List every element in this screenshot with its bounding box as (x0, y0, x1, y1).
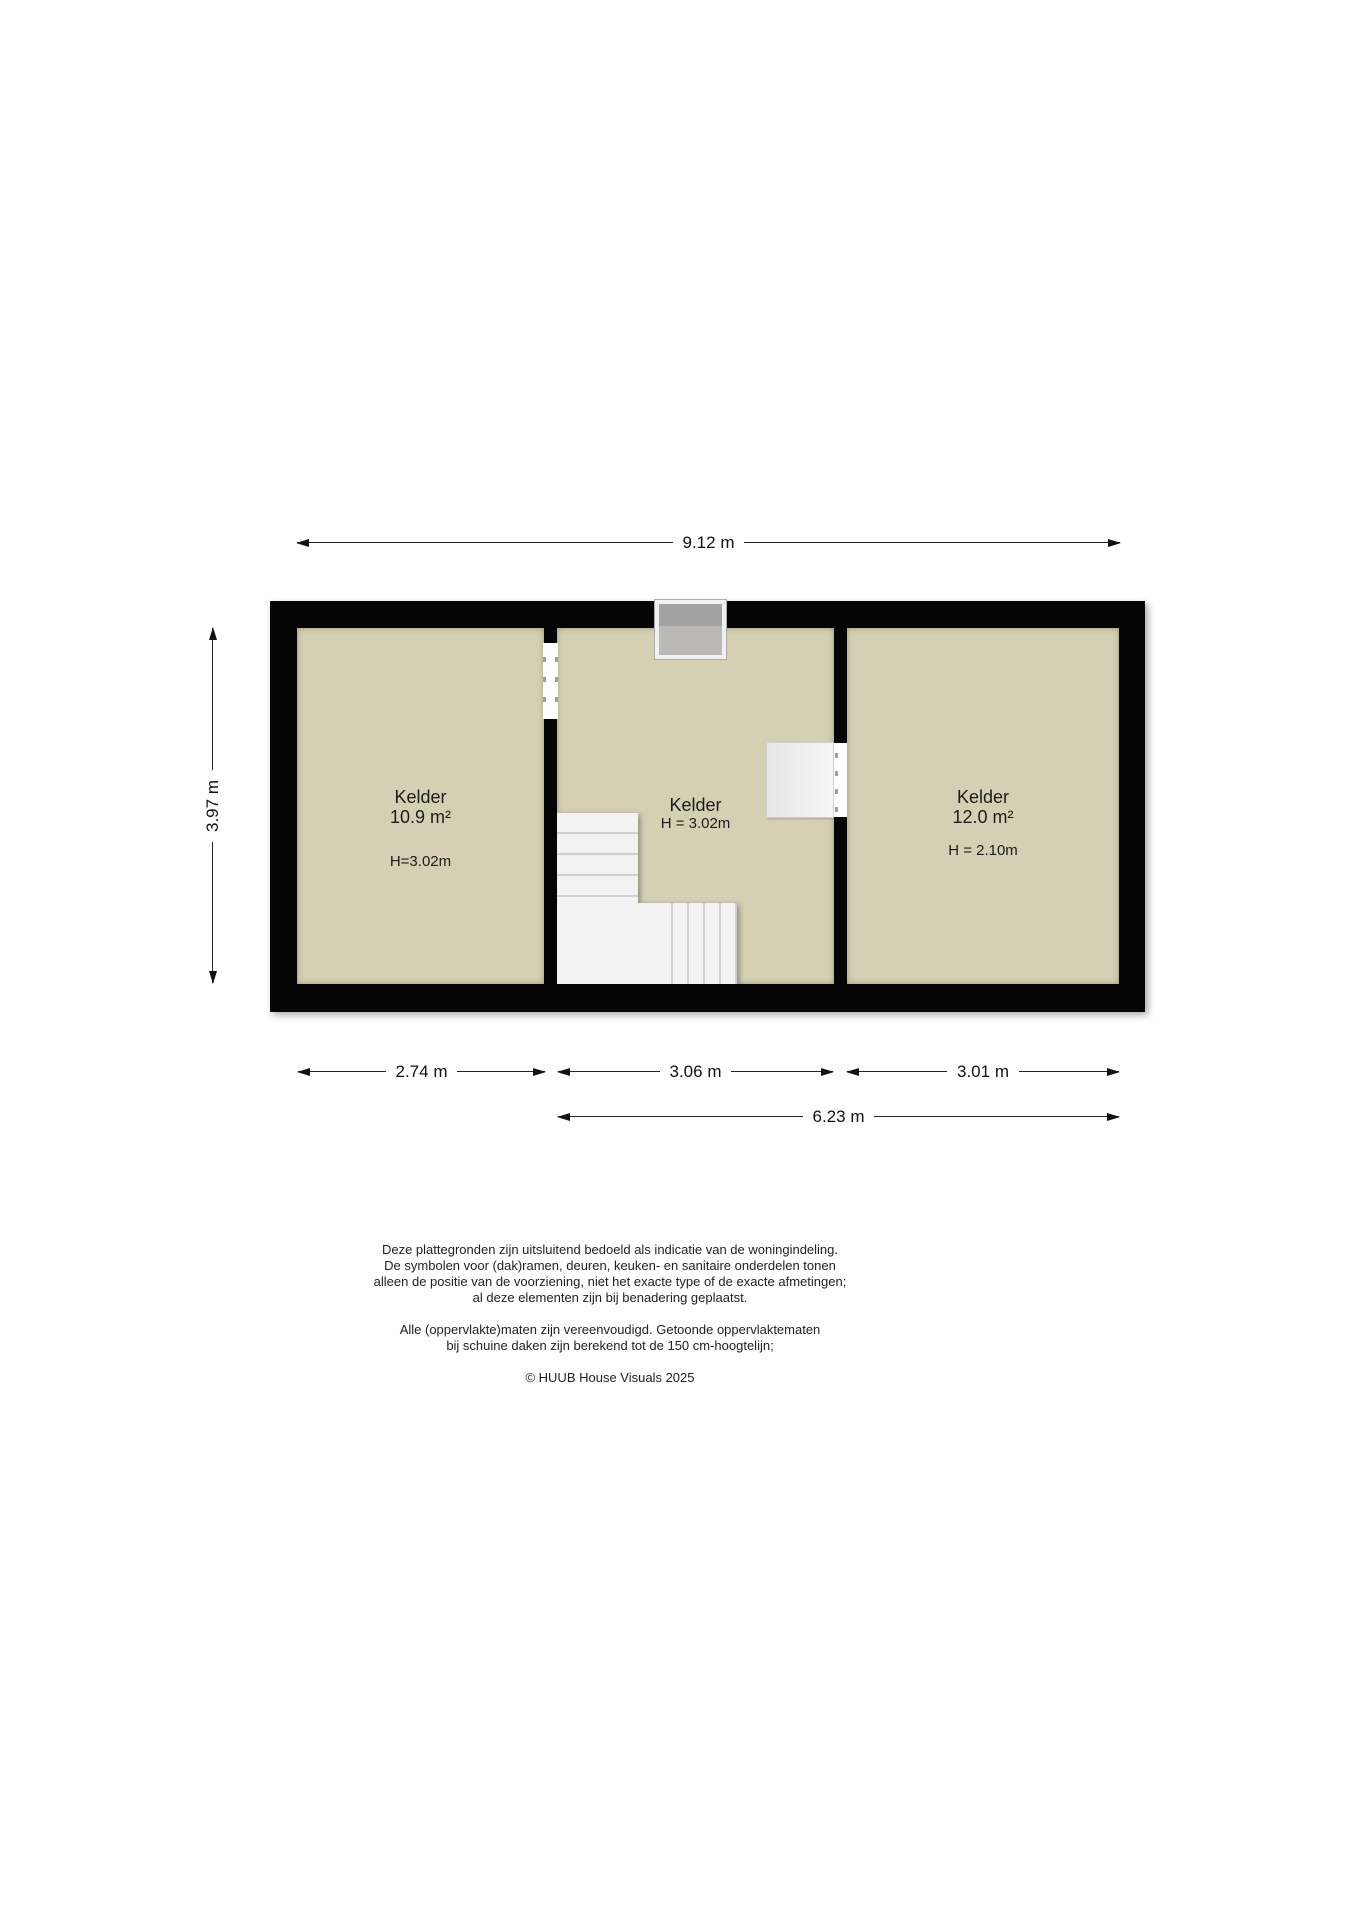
arrow-right-icon (821, 1068, 834, 1076)
room-area: 10.9 m² (297, 807, 544, 827)
arrow-right-icon (1107, 1113, 1120, 1121)
room-name: Kelder (297, 787, 544, 807)
room-kelder-3: Kelder 12.0 m² H = 2.10m (847, 628, 1119, 984)
dimension-total-height-label: 3.97 m (203, 770, 223, 842)
room-kelder-3-label: Kelder 12.0 m² H = 2.10m (847, 787, 1119, 859)
room-kelder-1: Kelder 10.9 m² H=3.02m (297, 628, 544, 984)
door-leaf-icon (766, 742, 834, 818)
door-dashes (835, 753, 838, 813)
room-name: Kelder (847, 787, 1119, 807)
disclaimer-line: alleen de positie van de voorziening, ni… (374, 1274, 847, 1290)
door-opening-icon (834, 743, 847, 817)
disclaimer-line: bij schuine daken zijn berekend tot de 1… (374, 1338, 847, 1354)
disclaimer-line: Alle (oppervlakte)maten zijn vereenvoudi… (374, 1322, 847, 1338)
dimension-rooms23-width: 6.23 m (558, 1116, 1119, 1117)
dimension-total-width-label: 9.12 m (673, 533, 745, 553)
dimension-room1-width-label: 2.74 m (386, 1062, 458, 1082)
room-kelder-1-label: Kelder 10.9 m² H=3.02m (297, 787, 544, 870)
floorplan-page: 9.12 m 3.97 m Kelder 10.9 m² H=3.02m Kel… (0, 0, 1358, 1920)
arrow-left-icon (846, 1068, 859, 1076)
dimension-room3-width-label: 3.01 m (947, 1062, 1019, 1082)
dimension-rooms23-width-label: 6.23 m (803, 1107, 875, 1127)
arrow-up-icon (209, 627, 217, 640)
arrow-right-icon (1108, 539, 1121, 547)
dimension-total-width: 9.12 m (297, 542, 1120, 543)
stairs-vertical-flight (557, 813, 638, 903)
room-area: 12.0 m² (847, 807, 1119, 827)
arrow-left-icon (557, 1068, 570, 1076)
footer-disclaimer: Deze plattegronden zijn uitsluitend bedo… (374, 1242, 847, 1386)
arrow-left-icon (557, 1113, 570, 1121)
dimension-room3-width: 3.01 m (847, 1071, 1119, 1072)
arrow-down-icon (209, 971, 217, 984)
stairs-icon (557, 813, 737, 984)
chimney-dark-part (659, 604, 722, 626)
room-ceiling-height: H=3.02m (297, 853, 544, 870)
dimension-total-height: 3.97 m (212, 628, 213, 983)
arrow-right-icon (1107, 1068, 1120, 1076)
disclaimer-line: al deze elementen zijn bij benadering ge… (374, 1290, 847, 1306)
arrow-left-icon (297, 1068, 310, 1076)
arrow-right-icon (533, 1068, 546, 1076)
dimension-room1-width: 2.74 m (298, 1071, 545, 1072)
window-dashes (555, 657, 558, 713)
chimney-icon (654, 599, 727, 660)
building-outline: Kelder 10.9 m² H=3.02m Kelder H = 3.02m … (270, 601, 1145, 1012)
room-ceiling-height: H = 2.10m (847, 842, 1119, 859)
dimension-room2-width: 3.06 m (558, 1071, 833, 1072)
arrow-left-icon (296, 539, 309, 547)
window-dashes (543, 657, 546, 713)
disclaimer-line: Deze plattegronden zijn uitsluitend bedo… (374, 1242, 847, 1258)
disclaimer-line: De symbolen voor (dak)ramen, deuren, keu… (374, 1258, 847, 1274)
dimension-room2-width-label: 3.06 m (660, 1062, 732, 1082)
interior-window-icon (543, 643, 558, 719)
stairs-horizontal-flight (657, 903, 737, 984)
chimney-light-part (659, 626, 722, 655)
copyright-line: © HUUB House Visuals 2025 (374, 1370, 847, 1386)
